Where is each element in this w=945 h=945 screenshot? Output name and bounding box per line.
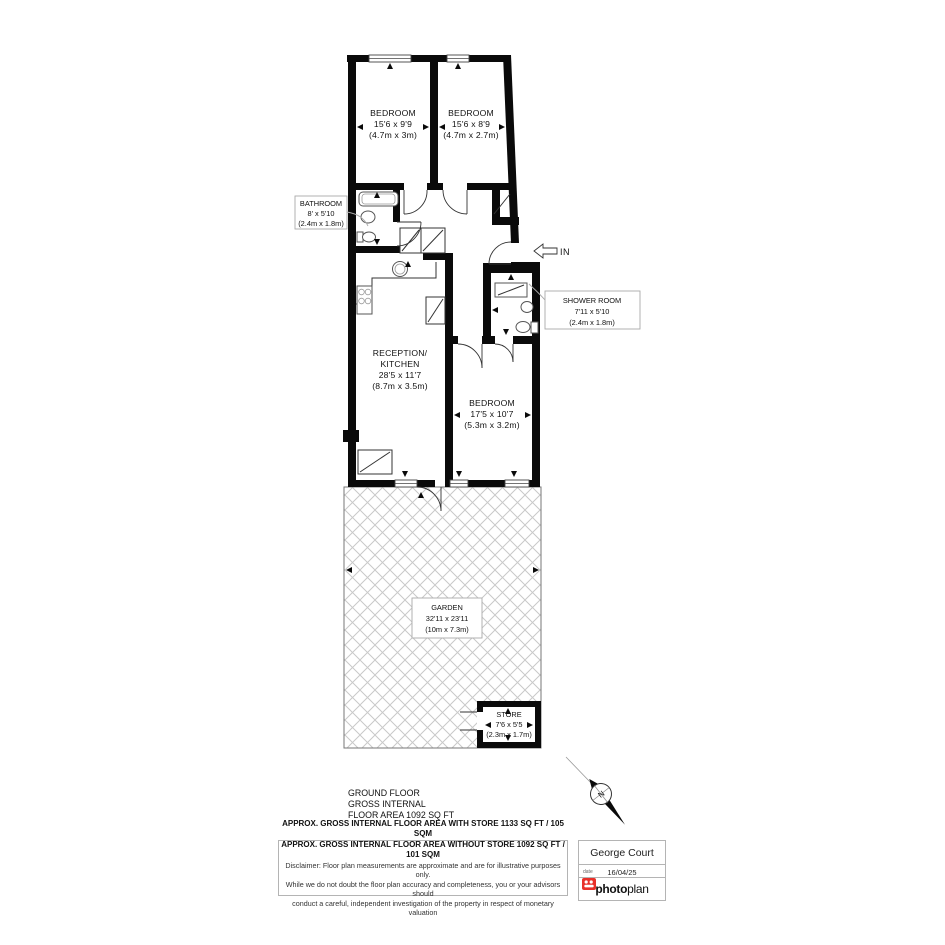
basin-icon: [361, 211, 375, 223]
svg-text:(2.4m x 1.8m): (2.4m x 1.8m): [298, 219, 344, 228]
svg-text:(10m x 7.3m): (10m x 7.3m): [425, 625, 469, 634]
svg-text:RECEPTION/: RECEPTION/: [373, 348, 428, 358]
svg-text:STORE: STORE: [496, 710, 521, 719]
svg-text:(5.3m x 3.2m): (5.3m x 3.2m): [464, 420, 520, 430]
svg-text:BEDROOM: BEDROOM: [370, 108, 416, 118]
garden-label: GARDEN 32'11 x 23'11 (10m x 7.3m): [412, 598, 482, 638]
disclaimer-line-2: While we do not doubt the floor plan acc…: [279, 880, 567, 898]
svg-text:(2.3m x 1.7m): (2.3m x 1.7m): [486, 730, 532, 739]
date-box: date 16/04/25: [578, 864, 666, 878]
floorplan-page: IN BEDROOM 15'6 x 9'9 (4.7m x 3m) BEDROO…: [0, 0, 945, 945]
svg-text:KITCHEN: KITCHEN: [380, 359, 419, 369]
bathroom-fixtures: [357, 192, 398, 242]
disclaimer-line-1: Disclaimer: Floor plan measurements are …: [279, 861, 567, 879]
window-icon: [450, 480, 468, 487]
svg-text:(4.7m x 3m): (4.7m x 3m): [369, 130, 417, 140]
logo-text-photo: photo: [595, 882, 627, 896]
floorplan-drawing: IN BEDROOM 15'6 x 9'9 (4.7m x 3m) BEDROO…: [0, 0, 945, 945]
svg-text:17'5 x 10'7: 17'5 x 10'7: [470, 409, 513, 419]
bathroom-label: BATHROOM 8' x 5'10 (2.4m x 1.8m): [295, 196, 368, 229]
property-name: George Court: [590, 847, 654, 859]
reception-kitchen-label: RECEPTION/ KITCHEN 28'5 x 11'7 (8.7m x 3…: [372, 348, 428, 391]
north-compass-icon: N: [566, 757, 633, 831]
disclaimer-line-3: conduct a careful, independent investiga…: [279, 899, 567, 917]
basin-icon: [521, 302, 533, 313]
date-value: 16/04/25: [579, 868, 665, 877]
camera-icon: [582, 878, 596, 890]
window-icon: [505, 480, 529, 487]
svg-text:15'6 x 8'9: 15'6 x 8'9: [452, 119, 490, 129]
area-with-store: APPROX. GROSS INTERNAL FLOOR AREA WITH S…: [279, 819, 567, 839]
kitchen-fixtures: [356, 262, 436, 315]
footer-disclaimer-box: APPROX. GROSS INTERNAL FLOOR AREA WITH S…: [278, 840, 568, 896]
svg-text:GARDEN: GARDEN: [431, 603, 463, 612]
svg-text:BEDROOM: BEDROOM: [448, 108, 494, 118]
window-icon: [369, 55, 411, 62]
svg-text:28'5 x 11'7: 28'5 x 11'7: [379, 370, 422, 380]
entrance-label: IN: [560, 247, 570, 257]
svg-text:7'11 x 5'10: 7'11 x 5'10: [575, 307, 610, 316]
bedroom3-label: BEDROOM 17'5 x 10'7 (5.3m x 3.2m): [464, 398, 520, 430]
entrance-marker: IN: [534, 244, 570, 258]
svg-text:8' x 5'10: 8' x 5'10: [307, 209, 334, 218]
gross-internal-label: GROSS INTERNAL: [348, 799, 426, 809]
svg-text:BATHROOM: BATHROOM: [300, 199, 342, 208]
svg-text:7'6 x 5'5: 7'6 x 5'5: [495, 720, 522, 729]
shower-fixtures: [495, 283, 538, 333]
shower-room-label: SHOWER ROOM 7'11 x 5'10 (2.4m x 1.8m): [529, 284, 640, 329]
bedroom1-label: BEDROOM 15'6 x 9'9 (4.7m x 3m): [369, 108, 417, 140]
toilet-icon: [531, 322, 538, 333]
area-without-store: APPROX. GROSS INTERNAL FLOOR AREA WITHOU…: [279, 840, 567, 860]
svg-text:SHOWER ROOM: SHOWER ROOM: [563, 296, 621, 305]
svg-text:(2.4m x 1.8m): (2.4m x 1.8m): [569, 318, 615, 327]
logo-text-plan: plan: [627, 882, 649, 896]
in-arrow-icon: [534, 244, 557, 258]
svg-text:(8.7m x 3.5m): (8.7m x 3.5m): [372, 381, 428, 391]
svg-text:BEDROOM: BEDROOM: [469, 398, 515, 408]
svg-text:32'11 x 23'11: 32'11 x 23'11: [426, 614, 468, 623]
title-block: GROUND FLOOR GROSS INTERNAL FLOOR AREA 1…: [348, 788, 455, 820]
svg-text:(4.7m x 2.7m): (4.7m x 2.7m): [443, 130, 499, 140]
property-name-box: George Court: [578, 840, 666, 865]
window-icon: [395, 480, 417, 487]
photoplan-logo: photoplan: [578, 877, 666, 901]
floor-title: GROUND FLOOR: [348, 788, 420, 798]
svg-text:15'6 x 9'9: 15'6 x 9'9: [374, 119, 412, 129]
window-icon: [447, 55, 469, 62]
bedroom2-label: BEDROOM 15'6 x 8'9 (4.7m x 2.7m): [443, 108, 499, 140]
